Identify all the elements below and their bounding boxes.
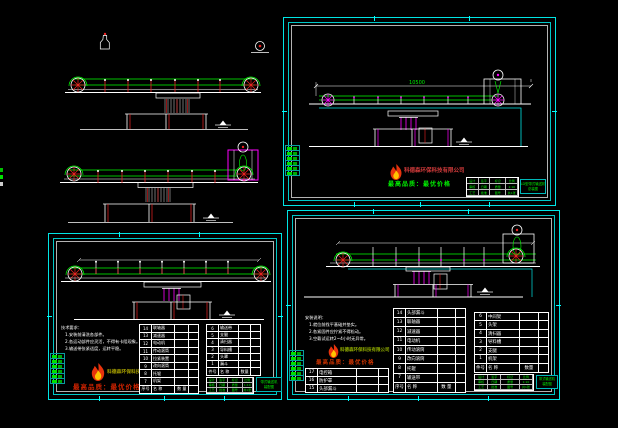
bom-row: 16 防护罩	[306, 376, 388, 384]
title-block-cell: 图号	[228, 388, 243, 393]
note-line: 3.空载试运转2~4小时无异常。	[305, 335, 381, 342]
conveyor-elevation-1	[65, 77, 261, 130]
pulley-glyph	[251, 42, 269, 53]
bom-row: 8 托辊	[394, 363, 465, 372]
bom-row: 13 联轴器	[394, 317, 465, 326]
bom-header-row: 件号 名 称 数量	[475, 363, 548, 372]
sheet-bottom-left[interactable]: 技术要求： 1.安装前清洗各部件。 2.各运动部件应灵活，不得有卡阻现象。 3.…	[48, 233, 282, 400]
bom-row: 2 头罩	[207, 353, 260, 360]
bom-row: 10 传动滚筒	[394, 345, 465, 354]
drawing-number-box: LD型带式输送机 总装图	[520, 179, 546, 194]
note-line: 2.各运动部件应灵活，不得有卡阻现象。	[61, 338, 137, 345]
logo-company-text: 科德森环保科技有限公司	[404, 166, 465, 174]
bom-row: 9 改向滚筒	[394, 354, 465, 363]
bom-header-row: 序号 名 称 数 量	[394, 382, 465, 392]
hopper-glyph	[100, 33, 109, 49]
bom-row: 3 导料槽	[207, 346, 260, 353]
bom-table-center: 14 头部漏斗 13 联轴器 12 减速器 11 电动机	[393, 308, 466, 393]
bom-table-extra: 17 电控箱 16 防护罩 15 头部漏斗	[305, 368, 389, 393]
sheet-bottom-right[interactable]: 安装说明： 1.就位前找平基础并垫实。 2.各紧固件应拧紧不得松动。 3.空载试…	[287, 210, 560, 400]
bom-row: 12 减速器	[394, 326, 465, 335]
bom-row: 8 托辊	[140, 369, 198, 377]
title-block-cell: 图号	[490, 190, 506, 196]
logo-company-text: 科德森环保科技有限公司	[340, 347, 390, 353]
title-block-cell: 批准	[217, 388, 227, 393]
drawing-subtitle: 装配图	[542, 382, 552, 387]
title-block-cell: 共1张	[243, 388, 253, 393]
sheet-top-right[interactable]: 10500 科德森环保科技有限公司 最高品质：最优价格	[283, 17, 556, 206]
bom-row: 2 支腿	[475, 346, 548, 354]
bom-row: 6 中间架	[475, 313, 548, 320]
title-block: 设计签字标记比例审核日期质量1:10工艺批准图号共1张	[474, 374, 534, 391]
conveyor-elevation-2	[60, 142, 258, 223]
cad-canvas: 10500 科德森环保科技有限公司 最高品质：最优价格	[0, 0, 618, 428]
bom-table-left: 14 联轴器 13 减速器 12 电动机 11 传动滚筒	[139, 324, 199, 394]
drawing-number-box: 带式输送机 装配图	[256, 377, 282, 392]
title-block: 设计签字标记比例审核日期质量1:10工艺批准图号共1张	[466, 177, 519, 197]
bom-row: 14 头部漏斗	[394, 309, 465, 317]
note-line: 1.安装前清洗各部件。	[61, 331, 137, 338]
bom-row: 4 清扫器	[475, 329, 548, 337]
title-block-cell: 批准	[488, 385, 501, 390]
note-line: 2.各紧固件应拧紧不得松动。	[305, 328, 381, 335]
technical-notes: 技术要求： 1.安装前清洗各部件。 2.各运动部件应灵活，不得有卡阻现象。 3.…	[61, 324, 137, 352]
clipped-edge-marks	[0, 168, 4, 194]
bom-row: 7 机架	[140, 377, 198, 385]
title-block-cell: 共1张	[506, 190, 518, 196]
bom-header-row: 件号 名 称 数量	[207, 367, 260, 375]
title-block-cell: 工艺	[467, 190, 479, 196]
bom-row: 1 机架	[475, 354, 548, 362]
bom-row: 9 改向滚筒	[140, 362, 198, 370]
bom-table-right: 6 输送带 5 支腿 4 清扫器 3 导料槽	[206, 324, 261, 376]
title-block: 设计签字标记比例审核日期质量1:10工艺批准图号共1张	[206, 377, 254, 394]
title-block-cell: 工艺	[207, 388, 217, 393]
bom-row: 11 传动滚筒	[140, 347, 198, 355]
company-logo: 科德森环保科技有限公司 最高品质：最优价格	[388, 163, 468, 191]
title-block-cell: 批准	[479, 190, 491, 196]
note-line: 3.输送带张紧适度，运转平稳。	[61, 345, 137, 352]
bom-row: 13 减速器	[140, 332, 198, 340]
unframed-conveyor-drawings[interactable]	[18, 22, 290, 235]
bom-row: 12 电动机	[140, 339, 198, 347]
title-block-cell: 工艺	[475, 385, 488, 390]
bom-row: 5 支腿	[207, 331, 260, 338]
note-line: 1.就位前找平基础并垫实。	[305, 321, 381, 328]
bom-row: 15 头部漏斗	[306, 384, 388, 392]
installation-notes: 安装说明： 1.就位前找平基础并垫实。 2.各紧固件应拧紧不得松动。 3.空载试…	[305, 314, 381, 342]
logo-slogan-text: 最高品质：最优价格	[73, 381, 141, 391]
bom-row: 14 联轴器	[140, 325, 198, 332]
company-logo: 科德森环保科技有限公司 最高品质：最优价格	[314, 343, 394, 367]
bom-row: 11 电动机	[394, 336, 465, 345]
bom-row: 1 漏斗	[207, 360, 260, 367]
title-block-cell: 图号	[501, 385, 519, 390]
bom-row: 4 清扫器	[207, 338, 260, 345]
flame-icon	[91, 363, 105, 381]
bom-row: 5 头架	[475, 320, 548, 328]
title-block-cell: 共1张	[520, 385, 533, 390]
note-line: 安装说明：	[305, 314, 381, 321]
flame-icon	[390, 164, 402, 180]
drawing-subtitle: 总装图	[528, 187, 538, 192]
logo-slogan-text: 最高品质：最优价格	[388, 179, 451, 188]
bom-row: 7 输送带	[394, 373, 465, 382]
flame-icon	[328, 344, 339, 358]
bom-row: 10 拉紧装置	[140, 354, 198, 362]
note-line: 技术要求：	[61, 324, 137, 331]
bom-row: 17 电控箱	[306, 369, 388, 376]
bom-table-right: 6 中间架 5 头架 4 清扫器 3 导料槽	[474, 312, 549, 373]
drawing-subtitle: 装配图	[264, 385, 274, 390]
dimension-text: 10500	[409, 80, 425, 86]
bom-header-row: 序号 名 称 数 量	[140, 385, 198, 393]
logo-slogan-text: 最高品质：最优价格	[316, 358, 375, 366]
bom-row: 3 导料槽	[475, 337, 548, 345]
drawing-number-box: 带式输送机 装配图	[536, 375, 558, 389]
